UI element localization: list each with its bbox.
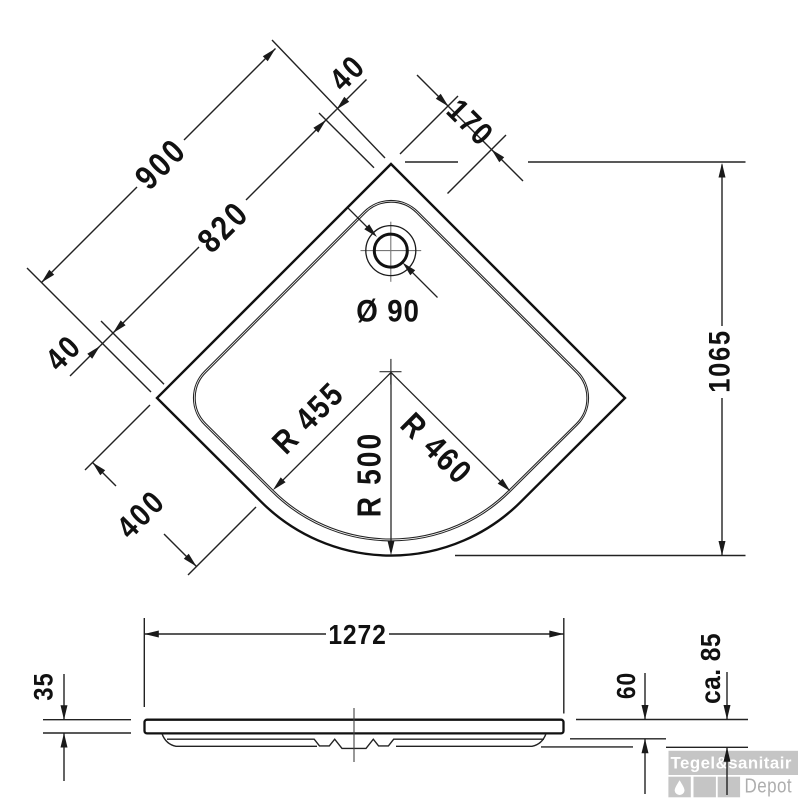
svg-text:60: 60 xyxy=(613,672,642,699)
svg-text:ca. 85: ca. 85 xyxy=(695,633,727,704)
svg-text:Depot: Depot xyxy=(745,774,793,797)
svg-text:Ø 90: Ø 90 xyxy=(356,294,420,329)
svg-text:Tegel&sanitair: Tegel&sanitair xyxy=(671,754,792,773)
svg-text:R 500: R 500 xyxy=(351,432,388,517)
svg-text:1065: 1065 xyxy=(703,329,736,393)
svg-text:35: 35 xyxy=(29,672,59,700)
svg-text:1272: 1272 xyxy=(328,619,386,651)
